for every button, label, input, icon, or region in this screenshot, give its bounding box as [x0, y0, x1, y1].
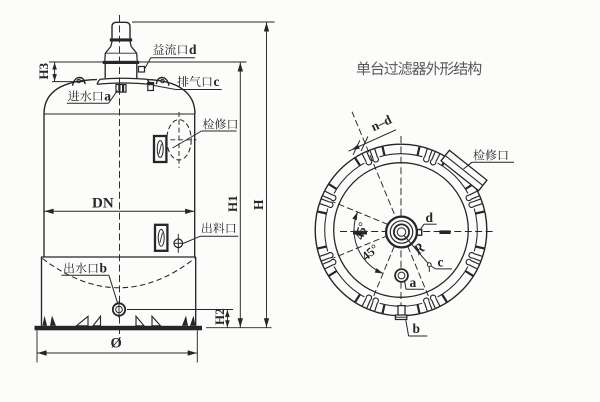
svg-text:Ø: Ø — [111, 336, 122, 352]
svg-text:c: c — [438, 255, 444, 270]
svg-text:a: a — [410, 275, 417, 290]
svg-text:b: b — [100, 261, 108, 276]
svg-text:DN: DN — [92, 196, 114, 212]
svg-text:H3: H3 — [36, 62, 51, 79]
svg-text:H1: H1 — [225, 195, 240, 212]
svg-text:b: b — [413, 321, 421, 336]
svg-text:H: H — [251, 199, 266, 210]
svg-text:d: d — [189, 42, 197, 57]
svg-text:c: c — [214, 74, 220, 89]
svg-text:H2: H2 — [212, 308, 227, 325]
svg-text:d: d — [426, 210, 434, 225]
